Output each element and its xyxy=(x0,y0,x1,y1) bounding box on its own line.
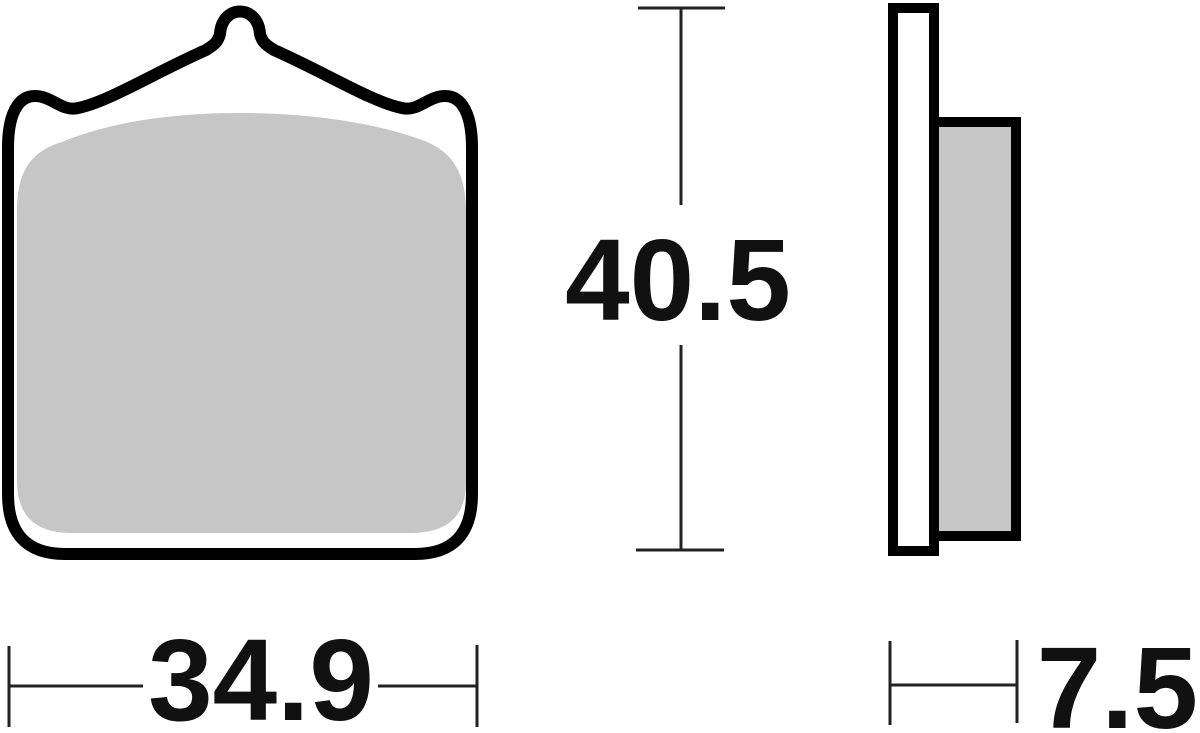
side-view-friction-material xyxy=(932,122,1016,536)
thickness-dimension: 7.5 xyxy=(890,623,1198,733)
drawing-canvas: 40.5 34.9 7.5 xyxy=(0,0,1200,733)
side-view xyxy=(893,8,1016,551)
front-view-friction-material xyxy=(17,113,466,533)
brake-pad-technical-drawing: 40.5 34.9 7.5 xyxy=(0,0,1200,733)
side-view-backing-plate xyxy=(893,8,934,551)
front-view xyxy=(8,12,472,555)
thickness-dimension-label: 7.5 xyxy=(1037,623,1198,733)
width-dimension: 34.9 xyxy=(9,615,477,733)
width-dimension-label: 34.9 xyxy=(148,615,374,733)
height-dimension-label: 40.5 xyxy=(565,215,791,345)
height-dimension: 40.5 xyxy=(565,8,791,550)
